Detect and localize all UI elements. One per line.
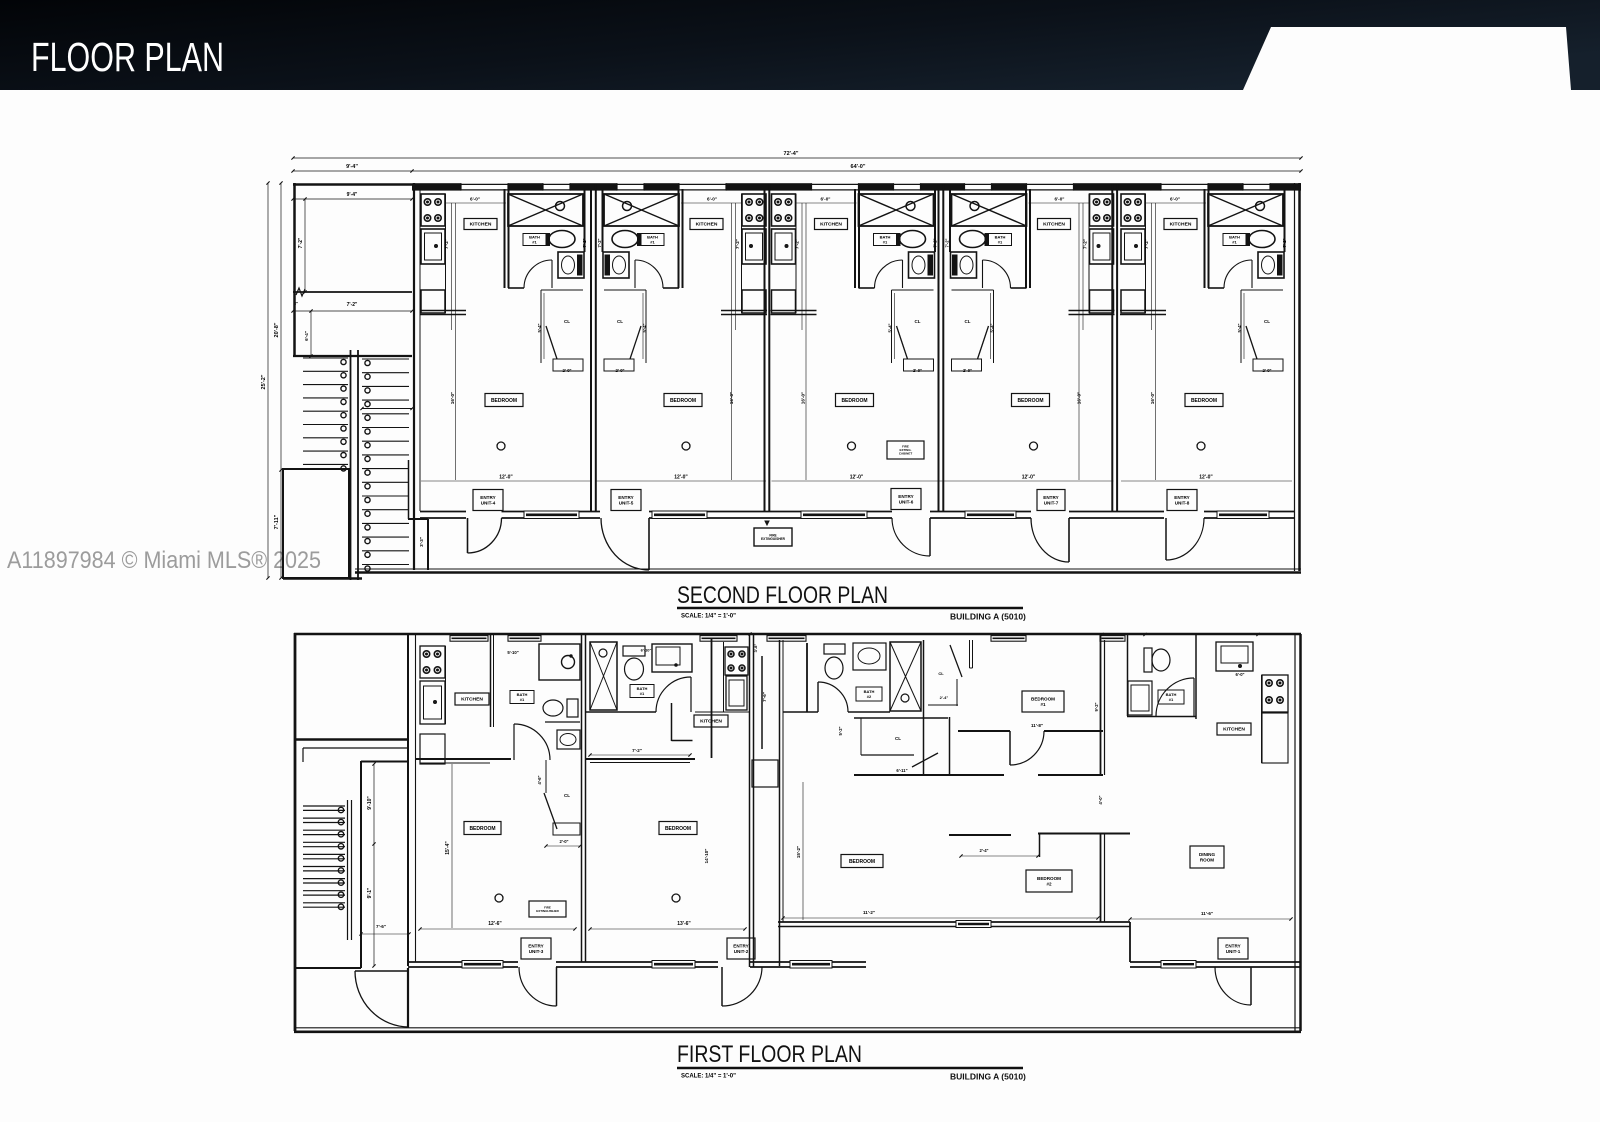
svg-text:CL: CL	[965, 319, 971, 324]
svg-text:2'-0": 2'-0"	[1262, 368, 1271, 373]
svg-text:6'-0": 6'-0"	[821, 197, 831, 202]
svg-text:BEDROOM: BEDROOM	[1017, 398, 1043, 404]
svg-text:9'-2": 9'-2"	[1094, 702, 1099, 711]
svg-text:BEDROOM: BEDROOM	[665, 826, 691, 832]
svg-text:BUILDING A (5010): BUILDING A (5010)	[950, 1072, 1026, 1082]
svg-text:BEDROOM: BEDROOM	[491, 398, 517, 404]
svg-text:EXTINGUISHER: EXTINGUISHER	[761, 537, 786, 541]
svg-text:13'-6": 13'-6"	[677, 921, 691, 927]
svg-text:CABINET: CABINET	[899, 451, 913, 455]
svg-text:DINING: DINING	[1199, 852, 1216, 857]
svg-text:SECOND FLOOR PLAN: SECOND FLOOR PLAN	[677, 582, 888, 609]
svg-text:7'-11": 7'-11"	[274, 514, 280, 529]
svg-text:CL: CL	[564, 319, 570, 324]
svg-text:12'-0": 12'-0"	[850, 475, 864, 481]
svg-text:6'-10": 6'-10"	[641, 648, 652, 653]
svg-text:5'-10": 5'-10"	[507, 650, 518, 655]
svg-text:16'-0": 16'-0"	[801, 392, 806, 404]
svg-text:BEDROOM: BEDROOM	[670, 398, 696, 404]
svg-text:BEDROOM: BEDROOM	[849, 859, 875, 865]
svg-text:CL: CL	[564, 793, 570, 798]
svg-text:2'-4": 2'-4"	[940, 695, 949, 700]
svg-text:5'-4": 5'-4"	[1237, 323, 1242, 332]
svg-text:5'-4": 5'-4"	[537, 323, 542, 332]
svg-text:7'-2": 7'-2"	[945, 238, 950, 247]
svg-text:7'-2": 7'-2"	[347, 302, 358, 308]
svg-text:16'-0": 16'-0"	[1150, 392, 1155, 404]
svg-text:CL: CL	[1264, 319, 1270, 324]
svg-text:CL: CL	[938, 671, 944, 676]
svg-text:9'-10": 9'-10"	[367, 796, 373, 810]
svg-text:ENTRY: ENTRY	[528, 943, 543, 948]
svg-text:12'-0": 12'-0"	[1199, 475, 1213, 481]
svg-text:UNIT-6: UNIT-6	[899, 499, 914, 504]
svg-text:5'-4": 5'-4"	[888, 323, 893, 332]
svg-text:CL: CL	[895, 736, 901, 741]
svg-text:7'-2": 7'-2"	[1083, 239, 1088, 249]
svg-text:UNIT-7: UNIT-7	[1044, 500, 1059, 505]
svg-text:#1: #1	[1169, 697, 1174, 702]
svg-text:11'-6": 11'-6"	[1201, 911, 1213, 916]
svg-text:6'-0": 6'-0"	[1170, 197, 1180, 202]
svg-text:12'-6": 12'-6"	[488, 921, 502, 927]
svg-text:#2: #2	[1046, 881, 1052, 886]
svg-text:ENTRY: ENTRY	[1225, 943, 1240, 948]
svg-text:6'-11": 6'-11"	[896, 768, 907, 773]
svg-text:FIRST FLOOR PLAN: FIRST FLOOR PLAN	[677, 1041, 862, 1068]
svg-text:7'-2": 7'-2"	[632, 748, 642, 753]
svg-text:#1: #1	[520, 697, 525, 702]
svg-text:2'-0": 2'-0"	[615, 368, 624, 373]
svg-text:#1: #1	[1040, 702, 1046, 707]
svg-text:#1: #1	[640, 691, 645, 696]
svg-text:7'-2": 7'-2"	[298, 237, 304, 248]
svg-text:CL: CL	[915, 319, 921, 324]
svg-text:ENTRY: ENTRY	[733, 943, 748, 948]
svg-text:15'-2": 15'-2"	[796, 846, 801, 858]
svg-text:BEDROOM: BEDROOM	[841, 398, 867, 404]
svg-text:7'-6": 7'-6"	[376, 924, 386, 929]
svg-text:EXTINGUISHER: EXTINGUISHER	[536, 909, 559, 913]
svg-text:7'-2": 7'-2"	[582, 238, 587, 247]
svg-text:5'-4": 5'-4"	[990, 323, 995, 332]
svg-text:20'-8": 20'-8"	[274, 322, 280, 337]
svg-text:7'-2": 7'-2"	[795, 239, 800, 249]
svg-text:2'-0": 2'-0"	[963, 368, 972, 373]
svg-text:ENTRY: ENTRY	[898, 494, 913, 499]
svg-text:ENTRY: ENTRY	[618, 495, 633, 500]
svg-text:4'-6": 4'-6"	[537, 775, 542, 784]
svg-text:#1: #1	[883, 239, 888, 244]
svg-text:UNIT-4: UNIT-4	[481, 500, 496, 505]
svg-text:7'-2": 7'-2"	[933, 238, 938, 247]
svg-text:12'-0": 12'-0"	[1022, 475, 1036, 481]
svg-text:#1: #1	[650, 239, 655, 244]
svg-text:KITCHEN: KITCHEN	[700, 719, 722, 725]
svg-text:11'-8": 11'-8"	[1031, 723, 1043, 728]
svg-text:#1: #1	[532, 239, 537, 244]
svg-text:72'-4": 72'-4"	[784, 151, 799, 157]
svg-text:6'-0": 6'-0"	[1055, 197, 1065, 202]
svg-text:UNIT-1: UNIT-1	[1226, 949, 1241, 954]
svg-text:12'-0": 12'-0"	[499, 475, 513, 481]
svg-text:KITCHEN: KITCHEN	[1170, 222, 1192, 228]
svg-text:BEDROOM: BEDROOM	[1191, 398, 1217, 404]
svg-text:A11897984 © Miami MLS® 2025: A11897984 © Miami MLS® 2025	[7, 547, 321, 574]
svg-text:BEDROOM: BEDROOM	[469, 826, 495, 832]
svg-text:SCALE: 1/4" = 1'-0": SCALE: 1/4" = 1'-0"	[681, 1074, 736, 1080]
svg-text:11'-2": 11'-2"	[863, 910, 875, 915]
svg-text:6'-0": 6'-0"	[1235, 672, 1244, 677]
svg-text:2'-4": 2'-4"	[979, 848, 988, 853]
svg-text:7'-2": 7'-2"	[735, 239, 740, 249]
svg-text:UNIT-8: UNIT-8	[1175, 500, 1190, 505]
svg-text:25'-2": 25'-2"	[261, 374, 267, 389]
svg-text:7'-2": 7'-2"	[597, 238, 602, 247]
svg-text:KITCHEN: KITCHEN	[470, 222, 492, 228]
svg-text:9'-4": 9'-4"	[346, 164, 358, 170]
svg-text:KITCHEN: KITCHEN	[461, 697, 483, 703]
svg-text:14'-10": 14'-10"	[704, 849, 709, 864]
svg-text:#1: #1	[998, 239, 1003, 244]
svg-text:BEDROOM: BEDROOM	[1031, 696, 1055, 701]
svg-text:16'-0": 16'-0"	[729, 392, 734, 404]
svg-text:6'-0": 6'-0"	[707, 197, 717, 202]
svg-text:ENTRY: ENTRY	[480, 495, 495, 500]
svg-text:9'-4": 9'-4"	[347, 192, 358, 198]
svg-text:ENTRY: ENTRY	[1174, 495, 1189, 500]
svg-text:UNIT-2: UNIT-2	[734, 949, 749, 954]
svg-text:7'-2": 7'-2"	[1144, 239, 1149, 249]
svg-text:15'-4": 15'-4"	[445, 841, 451, 855]
svg-text:6'-4": 6'-4"	[304, 331, 309, 341]
svg-text:7'-2": 7'-2"	[444, 239, 449, 249]
svg-text:KITCHEN: KITCHEN	[1223, 727, 1245, 733]
svg-text:64'-0": 64'-0"	[851, 164, 866, 170]
svg-text:FLOOR PLAN: FLOOR PLAN	[31, 34, 224, 80]
svg-text:UNIT-5: UNIT-5	[619, 500, 634, 505]
svg-text:BEDROOM: BEDROOM	[1037, 876, 1061, 881]
svg-text:#2: #2	[867, 694, 872, 699]
svg-text:12'-0": 12'-0"	[674, 475, 688, 481]
svg-text:7'-2": 7'-2"	[1282, 238, 1287, 247]
svg-text:4'-0": 4'-0"	[1098, 795, 1103, 804]
svg-text:3'-3": 3'-3"	[419, 537, 424, 547]
svg-text:KITCHEN: KITCHEN	[820, 222, 842, 228]
svg-text:16'-0": 16'-0"	[450, 392, 455, 404]
svg-text:ROOM: ROOM	[1200, 857, 1214, 862]
svg-text:2'-0": 2'-0"	[562, 368, 571, 373]
svg-text:16'-0": 16'-0"	[1077, 392, 1082, 404]
svg-text:KITCHEN: KITCHEN	[696, 222, 718, 228]
svg-text:2'-0": 2'-0"	[559, 839, 568, 844]
svg-text:CL: CL	[617, 319, 623, 324]
svg-text:5'-4": 5'-4"	[642, 323, 647, 332]
svg-text:ENTRY: ENTRY	[1043, 495, 1058, 500]
svg-text:SCALE: 1/4" = 1'-0": SCALE: 1/4" = 1'-0"	[681, 614, 736, 620]
svg-text:BUILDING A (5010): BUILDING A (5010)	[950, 612, 1026, 622]
svg-text:#1: #1	[1232, 239, 1237, 244]
svg-text:7'-6": 7'-6"	[762, 692, 767, 702]
svg-text:UNIT-3: UNIT-3	[529, 949, 544, 954]
svg-text:6'-0": 6'-0"	[470, 197, 480, 202]
svg-text:2'-0": 2'-0"	[913, 368, 922, 373]
svg-text:KITCHEN: KITCHEN	[1043, 222, 1065, 228]
svg-text:9'-1": 9'-1"	[367, 887, 373, 898]
svg-text:5'-2": 5'-2"	[838, 726, 843, 735]
